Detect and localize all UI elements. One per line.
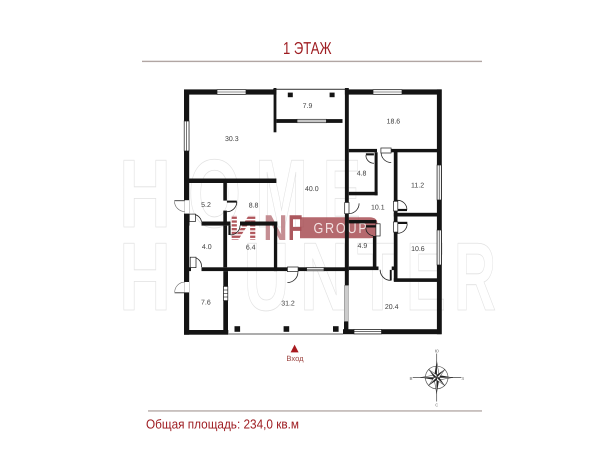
svg-text:31.2: 31.2: [281, 300, 295, 307]
svg-text:F: F: [288, 207, 303, 248]
svg-text:с: с: [435, 403, 438, 409]
svg-text:T: T: [357, 222, 398, 331]
svg-text:5.2: 5.2: [201, 202, 211, 209]
svg-text:И: И: [229, 207, 258, 248]
svg-text:20.4: 20.4: [385, 304, 399, 311]
svg-text:10.1: 10.1: [371, 205, 385, 212]
svg-text:7.9: 7.9: [303, 103, 313, 110]
svg-text:Вход: Вход: [286, 354, 304, 363]
svg-text:4.9: 4.9: [358, 243, 368, 250]
svg-text:H: H: [119, 222, 171, 331]
svg-text:в: в: [410, 376, 413, 382]
svg-text:7.6: 7.6: [201, 299, 211, 306]
svg-text:з: з: [461, 376, 464, 382]
svg-text:4.8: 4.8: [357, 171, 367, 178]
svg-text:8.8: 8.8: [249, 202, 259, 209]
svg-text:40.0: 40.0: [305, 186, 319, 193]
svg-text:ю: ю: [435, 349, 439, 355]
svg-text:N: N: [300, 222, 349, 331]
svg-text:6.4: 6.4: [246, 245, 256, 252]
svg-text:Общая площадь: 234,0 кв.м: Общая площадь: 234,0 кв.м: [146, 417, 299, 432]
svg-text:30.3: 30.3: [225, 136, 239, 143]
svg-text:1 ЭТАЖ: 1 ЭТАЖ: [283, 38, 332, 58]
svg-text:18.6: 18.6: [387, 119, 401, 126]
svg-text:R: R: [454, 222, 496, 331]
svg-text:4.0: 4.0: [202, 244, 212, 251]
svg-text:11.2: 11.2: [411, 183, 424, 190]
svg-text:10.6: 10.6: [411, 246, 425, 253]
